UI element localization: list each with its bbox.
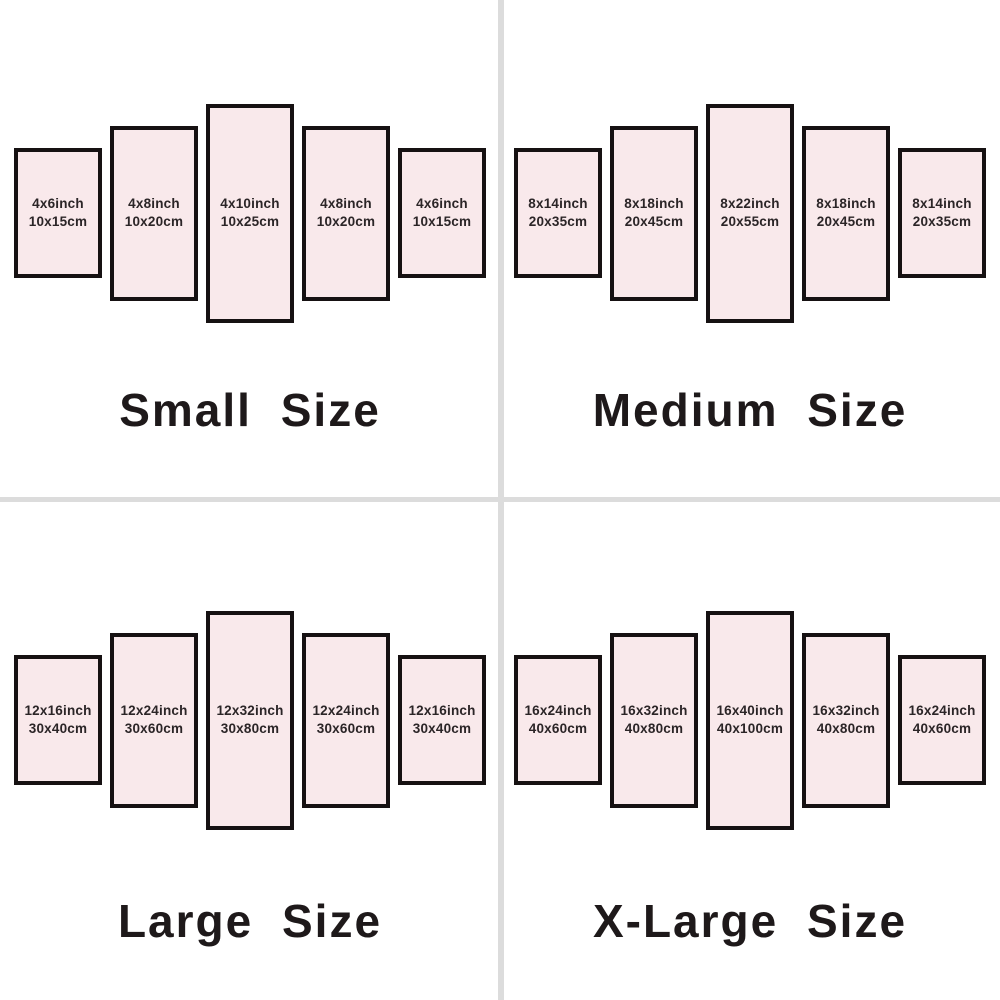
panel-size-cm: 10x15cm	[29, 213, 87, 231]
panel: 16x24inch 40x60cm	[898, 655, 986, 785]
panel-size-cm: 10x20cm	[125, 213, 183, 231]
panel: 16x32inch 40x80cm	[610, 633, 698, 808]
panel: 4x6inch 10x15cm	[398, 148, 486, 278]
panel: 12x16inch 30x40cm	[14, 655, 102, 785]
panel: 8x22inch 20x55cm	[706, 104, 794, 323]
panel-size-cm: 20x35cm	[913, 213, 971, 231]
panel: 4x8inch 10x20cm	[302, 126, 390, 301]
panel: 12x24inch 30x60cm	[302, 633, 390, 808]
panel-size-inch: 8x18inch	[816, 195, 875, 213]
panel-size-cm: 40x80cm	[817, 720, 875, 738]
panel-size-cm: 10x20cm	[317, 213, 375, 231]
panel-size-inch: 16x40inch	[716, 702, 783, 720]
panel-size-inch: 16x32inch	[620, 702, 687, 720]
panel-size-cm: 30x80cm	[221, 720, 279, 738]
panel-size-inch: 16x24inch	[524, 702, 591, 720]
panel-size-cm: 40x80cm	[625, 720, 683, 738]
quadrant-large: 12x16inch 30x40cm 12x24inch 30x60cm 12x3…	[0, 500, 500, 1000]
panel: 8x14inch 20x35cm	[898, 148, 986, 278]
panel-size-inch: 16x32inch	[812, 702, 879, 720]
quadrant-small: 4x6inch 10x15cm 4x8inch 10x20cm 4x10inch…	[0, 0, 500, 500]
panel-group-xlarge: 16x24inch 40x60cm 16x32inch 40x80cm 16x4…	[514, 610, 986, 830]
panel-size-inch: 12x16inch	[24, 702, 91, 720]
panel-size-cm: 10x15cm	[413, 213, 471, 231]
panel-group-medium: 8x14inch 20x35cm 8x18inch 20x45cm 8x22in…	[514, 103, 986, 323]
panel: 4x10inch 10x25cm	[206, 104, 294, 323]
panel-size-cm: 20x45cm	[817, 213, 875, 231]
panel-size-cm: 20x45cm	[625, 213, 683, 231]
panel-size-cm: 10x25cm	[221, 213, 279, 231]
panel-size-cm: 40x100cm	[717, 720, 783, 738]
panel-size-cm: 40x60cm	[913, 720, 971, 738]
panel-size-inch: 8x18inch	[624, 195, 683, 213]
panel-group-small: 4x6inch 10x15cm 4x8inch 10x20cm 4x10inch…	[14, 103, 486, 323]
panel-size-cm: 30x40cm	[413, 720, 471, 738]
panel-size-cm: 20x55cm	[721, 213, 779, 231]
size-chart: 4x6inch 10x15cm 4x8inch 10x20cm 4x10inch…	[0, 0, 1000, 1000]
panel: 16x40inch 40x100cm	[706, 611, 794, 830]
panel-size-cm: 40x60cm	[529, 720, 587, 738]
panel-size-cm: 30x40cm	[29, 720, 87, 738]
panel-size-inch: 12x32inch	[216, 702, 283, 720]
panel-size-inch: 8x22inch	[720, 195, 779, 213]
quadrant-title: Large Size	[0, 896, 500, 946]
quadrant-title: X-Large Size	[500, 896, 1000, 946]
panel-size-inch: 4x6inch	[32, 195, 84, 213]
panel-size-inch: 4x8inch	[320, 195, 372, 213]
panel: 16x32inch 40x80cm	[802, 633, 890, 808]
panel-size-inch: 12x24inch	[120, 702, 187, 720]
panel-size-inch: 4x10inch	[220, 195, 279, 213]
panel: 12x24inch 30x60cm	[110, 633, 198, 808]
panel-size-inch: 4x6inch	[416, 195, 468, 213]
quadrant-medium: 8x14inch 20x35cm 8x18inch 20x45cm 8x22in…	[500, 0, 1000, 500]
panel: 12x32inch 30x80cm	[206, 611, 294, 830]
panel-size-cm: 20x35cm	[529, 213, 587, 231]
panel-size-inch: 16x24inch	[908, 702, 975, 720]
quadrant-xlarge: 16x24inch 40x60cm 16x32inch 40x80cm 16x4…	[500, 500, 1000, 1000]
quadrant-title: Small Size	[0, 385, 500, 435]
panel: 8x18inch 20x45cm	[802, 126, 890, 301]
panel: 8x14inch 20x35cm	[514, 148, 602, 278]
panel-group-large: 12x16inch 30x40cm 12x24inch 30x60cm 12x3…	[14, 610, 486, 830]
panel: 4x8inch 10x20cm	[110, 126, 198, 301]
panel-size-inch: 8x14inch	[912, 195, 971, 213]
panel-size-inch: 12x16inch	[408, 702, 475, 720]
panel-size-cm: 30x60cm	[317, 720, 375, 738]
panel-size-inch: 12x24inch	[312, 702, 379, 720]
panel: 12x16inch 30x40cm	[398, 655, 486, 785]
panel: 8x18inch 20x45cm	[610, 126, 698, 301]
panel: 4x6inch 10x15cm	[14, 148, 102, 278]
quadrant-title: Medium Size	[500, 385, 1000, 435]
panel-size-cm: 30x60cm	[125, 720, 183, 738]
panel-size-inch: 4x8inch	[128, 195, 180, 213]
panel: 16x24inch 40x60cm	[514, 655, 602, 785]
panel-size-inch: 8x14inch	[528, 195, 587, 213]
